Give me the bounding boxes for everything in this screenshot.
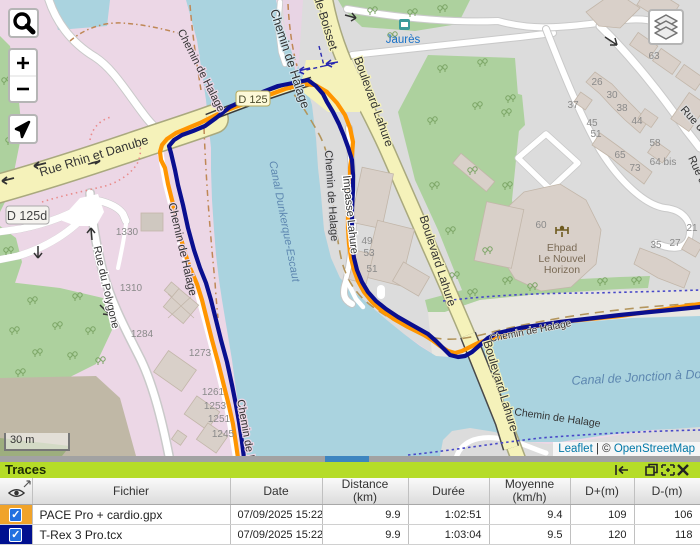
svg-text:51: 51: [590, 129, 602, 140]
svg-text:35: 35: [650, 240, 662, 251]
svg-text:27: 27: [669, 238, 681, 249]
svg-text:30: 30: [606, 90, 618, 101]
svg-text:38: 38: [616, 103, 628, 114]
svg-text:1245: 1245: [212, 429, 235, 440]
svg-text:64 bis: 64 bis: [650, 157, 677, 168]
svg-text:60: 60: [535, 220, 547, 231]
svg-text:26: 26: [591, 77, 603, 88]
svg-text:Jaurès: Jaurès: [386, 34, 421, 46]
svg-text:49: 49: [361, 236, 373, 247]
svg-text:53: 53: [363, 248, 375, 259]
svg-text:51: 51: [366, 264, 378, 275]
svg-text:1284: 1284: [131, 329, 154, 340]
svg-text:1261: 1261: [202, 387, 225, 398]
svg-text:1310: 1310: [120, 283, 143, 294]
svg-text:45: 45: [586, 118, 598, 129]
svg-text:1251: 1251: [208, 414, 231, 425]
svg-text:65: 65: [614, 150, 626, 161]
svg-text:1253: 1253: [204, 401, 227, 412]
svg-text:1273: 1273: [189, 348, 212, 359]
svg-text:73: 73: [629, 163, 641, 174]
svg-text:D 125: D 125: [238, 94, 267, 106]
svg-text:63: 63: [648, 51, 660, 62]
svg-text:21: 21: [686, 223, 698, 234]
svg-text:58: 58: [649, 138, 661, 149]
svg-text:Horizon: Horizon: [544, 264, 580, 276]
svg-text:D 125d: D 125d: [7, 209, 47, 223]
svg-text:37: 37: [567, 100, 579, 111]
svg-text:1330: 1330: [116, 227, 139, 238]
svg-text:44: 44: [631, 116, 643, 127]
